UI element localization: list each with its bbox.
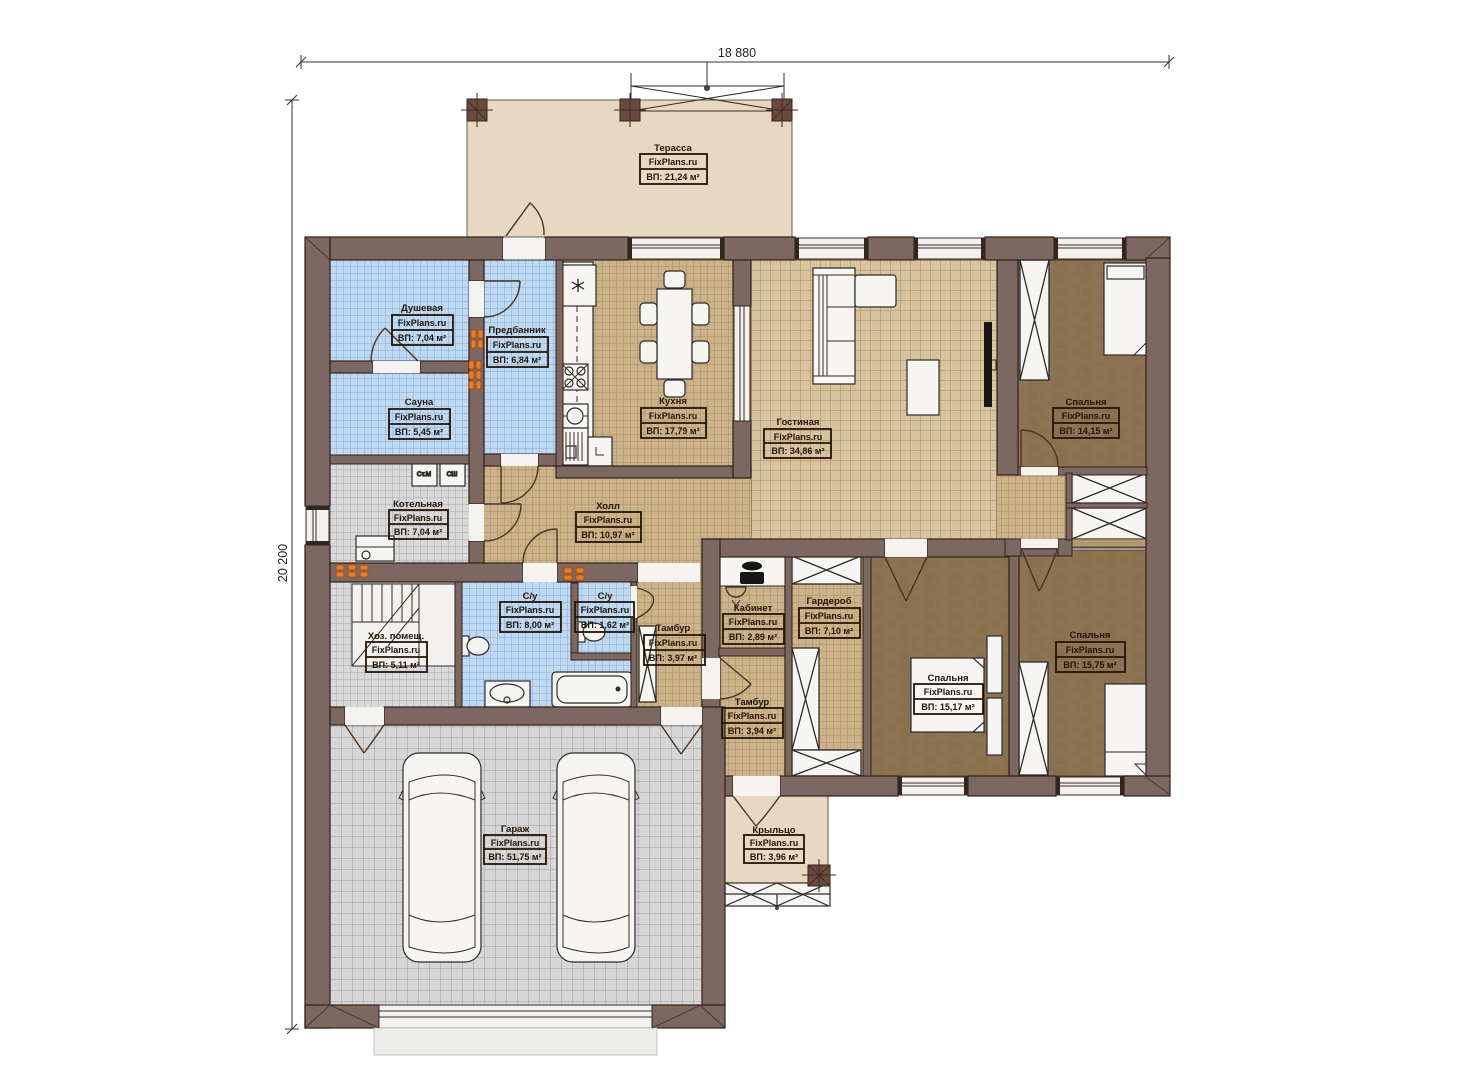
svg-text:Спальня: Спальня: [927, 673, 968, 684]
svg-text:ВП: 3,96 м²: ВП: 3,96 м²: [750, 852, 798, 862]
svg-text:ВП: 7,04 м²: ВП: 7,04 м²: [394, 527, 442, 537]
svg-text:ВП: 6,84 м²: ВП: 6,84 м²: [493, 355, 541, 365]
svg-text:ВП: 17,79 м²: ВП: 17,79 м²: [646, 426, 699, 436]
svg-text:СШ: СШ: [447, 471, 458, 478]
svg-text:Спальня: Спальня: [1065, 397, 1106, 408]
svg-text:FixPlans.ru: FixPlans.ru: [729, 617, 778, 627]
svg-text:FixPlans.ru: FixPlans.ru: [581, 605, 630, 615]
svg-text:Гостиная: Гостиная: [777, 417, 820, 428]
svg-text:ВП: 8,00 м²: ВП: 8,00 м²: [506, 620, 554, 630]
svg-text:Ст.М: Ст.М: [417, 471, 431, 478]
svg-text:Холл: Холл: [596, 501, 620, 512]
svg-text:ВП: 34,86 м²: ВП: 34,86 м²: [771, 446, 824, 456]
svg-text:С/у: С/у: [523, 591, 539, 602]
svg-text:18 880: 18 880: [718, 46, 756, 60]
svg-text:FixPlans.ru: FixPlans.ru: [750, 838, 799, 848]
svg-text:FixPlans.ru: FixPlans.ru: [493, 340, 542, 350]
svg-text:ВП: 2,89 м²: ВП: 2,89 м²: [729, 632, 777, 642]
svg-text:ВП: 15,75 м²: ВП: 15,75 м²: [1063, 660, 1116, 670]
svg-text:FixPlans.ru: FixPlans.ru: [728, 711, 777, 721]
svg-text:ВП: 14,15 м²: ВП: 14,15 м²: [1059, 426, 1112, 436]
svg-text:ВП: 15,17 м²: ВП: 15,17 м²: [921, 702, 974, 712]
svg-text:Гардероб: Гардероб: [807, 596, 852, 607]
svg-text:FixPlans.ru: FixPlans.ru: [805, 611, 854, 621]
svg-text:ВП: 10,97 м²: ВП: 10,97 м²: [581, 530, 634, 540]
svg-text:FixPlans.ru: FixPlans.ru: [372, 645, 421, 655]
svg-text:Тамбур: Тамбур: [656, 623, 691, 634]
svg-text:FixPlans.ru: FixPlans.ru: [649, 638, 698, 648]
svg-text:FixPlans.ru: FixPlans.ru: [394, 513, 443, 523]
svg-text:ВП: 5,45 м²: ВП: 5,45 м²: [395, 427, 443, 437]
svg-text:ВП: 3,94 м²: ВП: 3,94 м²: [728, 726, 776, 736]
svg-text:ВП: 7,04 м²: ВП: 7,04 м²: [398, 333, 446, 343]
svg-text:Гараж: Гараж: [501, 824, 530, 835]
svg-text:ВП: 1,62 м²: ВП: 1,62 м²: [581, 620, 629, 630]
svg-text:С/у: С/у: [598, 591, 614, 602]
svg-text:ВП: 3,97 м²: ВП: 3,97 м²: [649, 653, 697, 663]
svg-text:FixPlans.ru: FixPlans.ru: [649, 411, 698, 421]
svg-text:FixPlans.ru: FixPlans.ru: [1062, 411, 1111, 421]
svg-text:FixPlans.ru: FixPlans.ru: [774, 432, 823, 442]
svg-text:ВП: 7,10 м²: ВП: 7,10 м²: [805, 626, 853, 636]
svg-text:FixPlans.ru: FixPlans.ru: [506, 605, 555, 615]
svg-text:FixPlans.ru: FixPlans.ru: [924, 687, 973, 697]
svg-text:Душевая: Душевая: [401, 303, 443, 314]
svg-text:Кухня: Кухня: [659, 396, 687, 407]
svg-text:FixPlans.ru: FixPlans.ru: [649, 157, 698, 167]
svg-text:Предбанник: Предбанник: [488, 325, 545, 336]
svg-text:FixPlans.ru: FixPlans.ru: [491, 838, 540, 848]
svg-text:FixPlans.ru: FixPlans.ru: [1066, 645, 1115, 655]
svg-text:Кабинет: Кабинет: [734, 603, 773, 614]
svg-text:ВП: 5,11 м²: ВП: 5,11 м²: [372, 660, 420, 670]
svg-text:FixPlans.ru: FixPlans.ru: [584, 515, 633, 525]
svg-text:FixPlans.ru: FixPlans.ru: [398, 318, 447, 328]
svg-text:Тамбур: Тамбур: [735, 697, 770, 708]
svg-text:Хоз. помещ.: Хоз. помещ.: [368, 631, 424, 642]
svg-text:ВП: 21,24 м²: ВП: 21,24 м²: [646, 172, 699, 182]
svg-text:Котельная: Котельная: [393, 499, 443, 510]
svg-text:Терасса: Терасса: [654, 143, 692, 154]
svg-text:FixPlans.ru: FixPlans.ru: [395, 412, 444, 422]
svg-text:Сауна: Сауна: [405, 397, 434, 408]
svg-text:20 200: 20 200: [276, 544, 290, 582]
svg-text:ВП: 51,75 м²: ВП: 51,75 м²: [488, 852, 541, 862]
svg-text:Спальня: Спальня: [1069, 630, 1110, 641]
